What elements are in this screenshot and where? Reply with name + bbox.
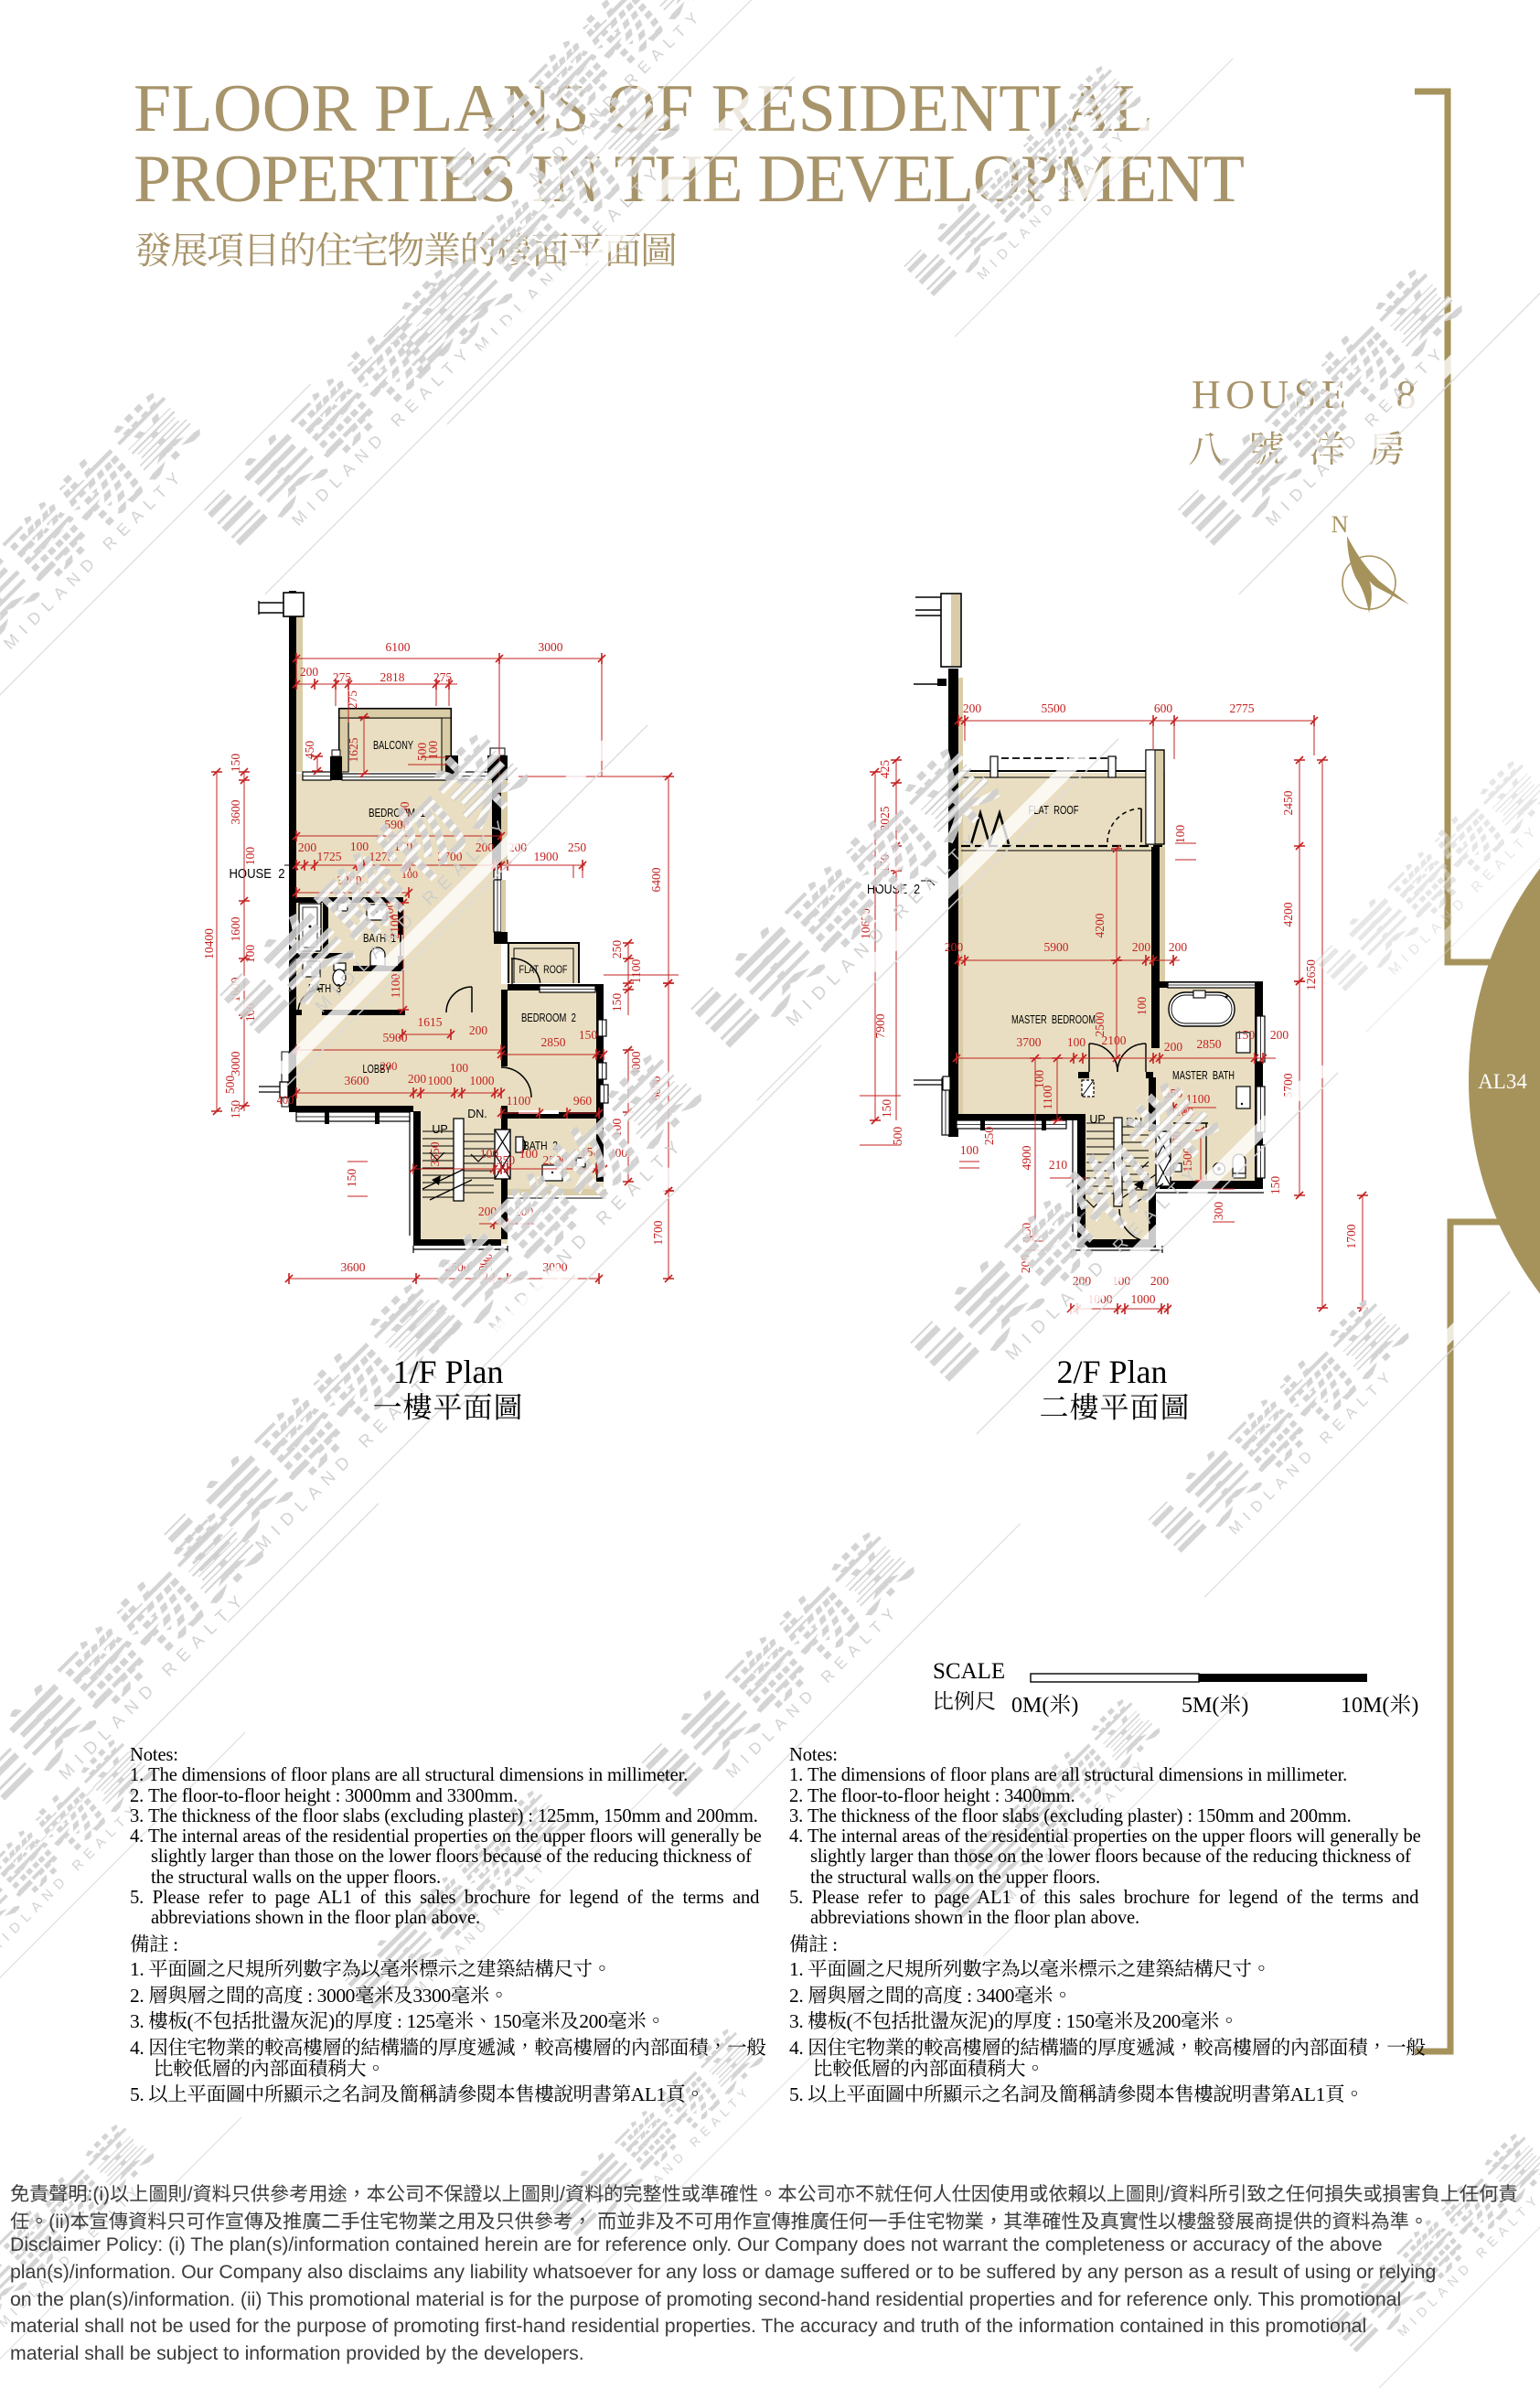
svg-text:美聯物業: 美聯物業 [1192,244,1480,532]
svg-text:美聯物業: 美聯物業 [925,1055,1237,1367]
svg-text:美聯物業: 美聯物業 [705,721,1018,1033]
svg-text:美聯物業: 美聯物業 [234,707,547,1020]
svg-text:美聯物業: 美聯物業 [408,1027,721,1340]
svg-text:美聯物業: 美聯物業 [915,45,1156,285]
svg-text:美聯物業: 美聯物業 [1160,1276,1425,1540]
svg-text:美聯物業: 美聯物業 [655,1507,931,1783]
